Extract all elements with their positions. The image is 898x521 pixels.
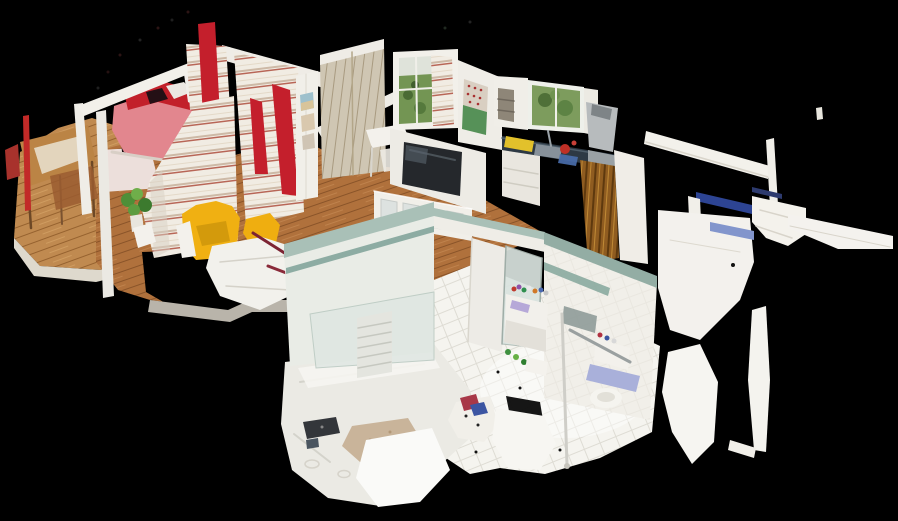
poster-dot [473,95,476,98]
poster-dot [480,89,483,92]
cistern-item [612,339,617,344]
poster-dot [469,101,472,104]
toiletry-bottle [533,289,538,294]
toiletry-bottle [517,285,522,290]
noise-speck [119,54,122,57]
green-shoe [513,354,519,360]
small-room-speck [731,263,735,267]
hall-desk-leg [371,148,372,176]
red-kettle-lid [572,141,577,146]
toilet-bowl-inner [597,392,615,402]
toiletry-bottle [527,286,532,291]
kitchen-tree-blob [557,100,573,116]
red-object-left [5,144,20,180]
kitchen-open-shelf [498,88,514,122]
laundry-speck [465,415,468,418]
wall-picture [302,133,315,150]
mat-speckle [389,431,392,434]
laundry-speck [477,424,480,427]
kitchen-tree-blob [538,93,552,107]
toiletry-bottle [512,287,517,292]
dollhouse-3d-viewport[interactable] [0,0,898,521]
plant-leaves [128,204,140,216]
poster-dot [474,87,477,90]
poster-dot [468,85,471,88]
window-curtain [431,55,454,126]
noise-speck [469,21,472,24]
wall-picture [301,113,315,132]
green-shoe [505,349,511,355]
wardrobe-panel-seam [352,52,353,175]
dark-tablet-dot [321,426,324,429]
plant-leaves [138,198,152,212]
shower-pole-base [564,463,570,469]
poster-dot [467,93,470,96]
floor-speck [519,387,522,390]
noise-speck [157,27,160,30]
window-mullion [416,57,417,123]
cistern-item [598,333,603,338]
poster-dot [479,97,482,100]
bath-door-white [468,238,506,352]
white-dash [816,107,823,120]
noise-speck [139,39,142,42]
toiletry-bottle [544,291,549,296]
red-kettle [560,144,570,154]
poster-dot [477,103,480,106]
noise-speck [107,71,110,74]
plant-leaves [131,188,143,200]
cistern-item [605,336,610,341]
noise-speck [171,19,174,22]
floor-speck [559,449,562,452]
floor-speck [475,451,478,454]
toiletry-bottle [539,288,544,293]
noise-speck [444,27,447,30]
floor-speck [497,371,500,374]
noise-speck [187,11,190,14]
noise-speck [97,87,100,90]
garden-window-bush [411,81,419,89]
garden-window-bush [403,90,413,100]
dollhouse-scene [0,0,898,521]
toiletry-bottle [522,288,527,293]
